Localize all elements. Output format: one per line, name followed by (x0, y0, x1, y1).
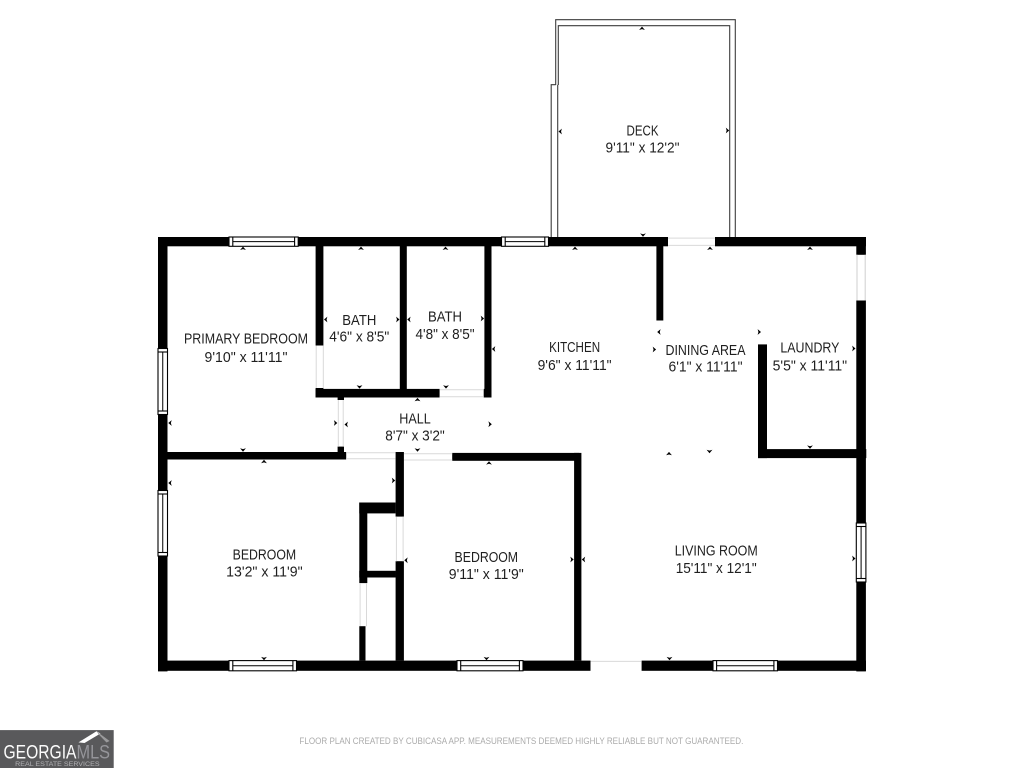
svg-text:PRIMARY BEDROOM: PRIMARY BEDROOM (184, 332, 308, 348)
svg-text:6'1" x 11'11": 6'1" x 11'11" (669, 360, 743, 376)
svg-text:4'8" x 8'5": 4'8" x 8'5" (416, 327, 475, 343)
svg-text:5'5" x 11'11": 5'5" x 11'11" (773, 358, 848, 374)
svg-text:9'10" x 11'11": 9'10" x 11'11" (205, 350, 288, 366)
svg-text:BATH: BATH (428, 310, 462, 326)
svg-text:BEDROOM: BEDROOM (455, 550, 519, 566)
svg-text:LIVING ROOM: LIVING ROOM (675, 544, 758, 560)
svg-text:4'6" x 8'5": 4'6" x 8'5" (329, 330, 389, 346)
svg-text:15'11" x 12'1": 15'11" x 12'1" (676, 561, 757, 577)
svg-text:8'7" x 3'2": 8'7" x 3'2" (385, 428, 445, 444)
svg-text:REAL ESTATE SERVICES: REAL ESTATE SERVICES (15, 761, 99, 768)
svg-text:BEDROOM: BEDROOM (233, 548, 297, 564)
svg-text:9'6" x 11'11": 9'6" x 11'11" (538, 358, 612, 374)
svg-text:BATH: BATH (342, 313, 376, 329)
svg-text:9'11" x 12'2": 9'11" x 12'2" (606, 141, 680, 157)
svg-text:HALL: HALL (399, 412, 431, 428)
svg-text:LAUNDRY: LAUNDRY (780, 341, 839, 357)
svg-text:KITCHEN: KITCHEN (549, 340, 600, 356)
svg-text:DINING AREA: DINING AREA (666, 343, 746, 359)
svg-text:13'2" x 11'9": 13'2" x 11'9" (226, 565, 303, 581)
svg-text:DECK: DECK (627, 124, 659, 140)
svg-text:FLOOR PLAN CREATED BY CUBICASA: FLOOR PLAN CREATED BY CUBICASA APP. MEAS… (299, 736, 743, 747)
svg-text:9'11" x 11'9": 9'11" x 11'9" (449, 567, 524, 583)
